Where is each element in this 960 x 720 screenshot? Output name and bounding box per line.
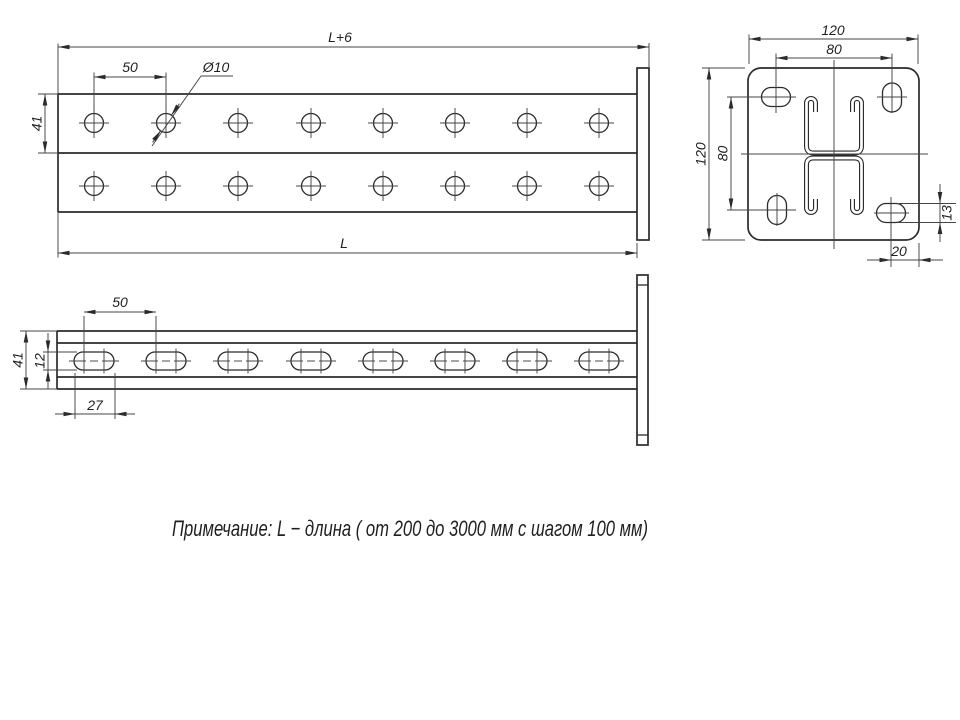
hole [368,108,398,138]
dim-corner-slot-offset: 20 [890,243,907,259]
dim-slot-width: 12 [32,353,48,369]
slot [358,349,408,374]
front-view: L+6 L 50 41 Ø10 [29,29,650,258]
dim-hole-spacing-v: 80 [715,146,731,162]
leader-line [152,76,201,146]
hole [440,171,470,201]
front-view-holes [79,108,614,201]
end-view: 120 80 120 80 13 20 [693,22,957,267]
slot [213,349,263,374]
slot [141,349,191,374]
hole [368,171,398,201]
front-view-dimensions: L+6 L 50 41 Ø10 [29,29,650,258]
leader-arrow [153,131,161,143]
slot [286,349,336,374]
slot [430,349,480,374]
dim-total-length: L+6 [328,29,352,45]
dim-hole-spacing: 50 [122,59,138,75]
hole [223,171,253,201]
hole [151,171,181,201]
dim-length: L [340,235,348,251]
side-view: 50 41 12 27 [10,275,649,445]
drawing-page: L+6 L 50 41 Ø10 [0,0,960,720]
dim-hole-diameter: Ø10 [202,59,230,75]
dim-flange-width: 41 [29,116,45,132]
front-view-outline [58,44,649,258]
hole [223,108,253,138]
end-view-dimensions: 120 80 120 80 13 20 [693,22,957,267]
hole [296,108,326,138]
hole [512,108,542,138]
hole [440,108,470,138]
hole [584,108,614,138]
dim-height: 120 [693,142,709,166]
technical-drawing: L+6 L 50 41 Ø10 [0,0,960,720]
side-view-slots [69,349,624,374]
dim-slot-spacing: 50 [112,294,128,310]
hole [151,108,181,138]
dim-slot-length: 27 [86,397,104,413]
hole [512,171,542,201]
slot [502,349,552,374]
hole [79,108,109,138]
hole [296,171,326,201]
hole [79,171,109,201]
dim-height: 41 [10,352,26,368]
leader-arrow [171,104,179,116]
side-view-dimensions: 50 41 12 27 [10,294,157,419]
hole [584,171,614,201]
end-plate-edge [637,275,648,445]
slot [574,349,624,374]
dim-hole-spacing-h: 80 [826,41,842,57]
dim-width: 120 [821,22,845,38]
end-plate-edge [637,68,649,240]
note-text: Примечание: L − длина ( от 200 до 3000 м… [172,516,648,541]
dim-corner-slot-height: 13 [939,205,955,221]
